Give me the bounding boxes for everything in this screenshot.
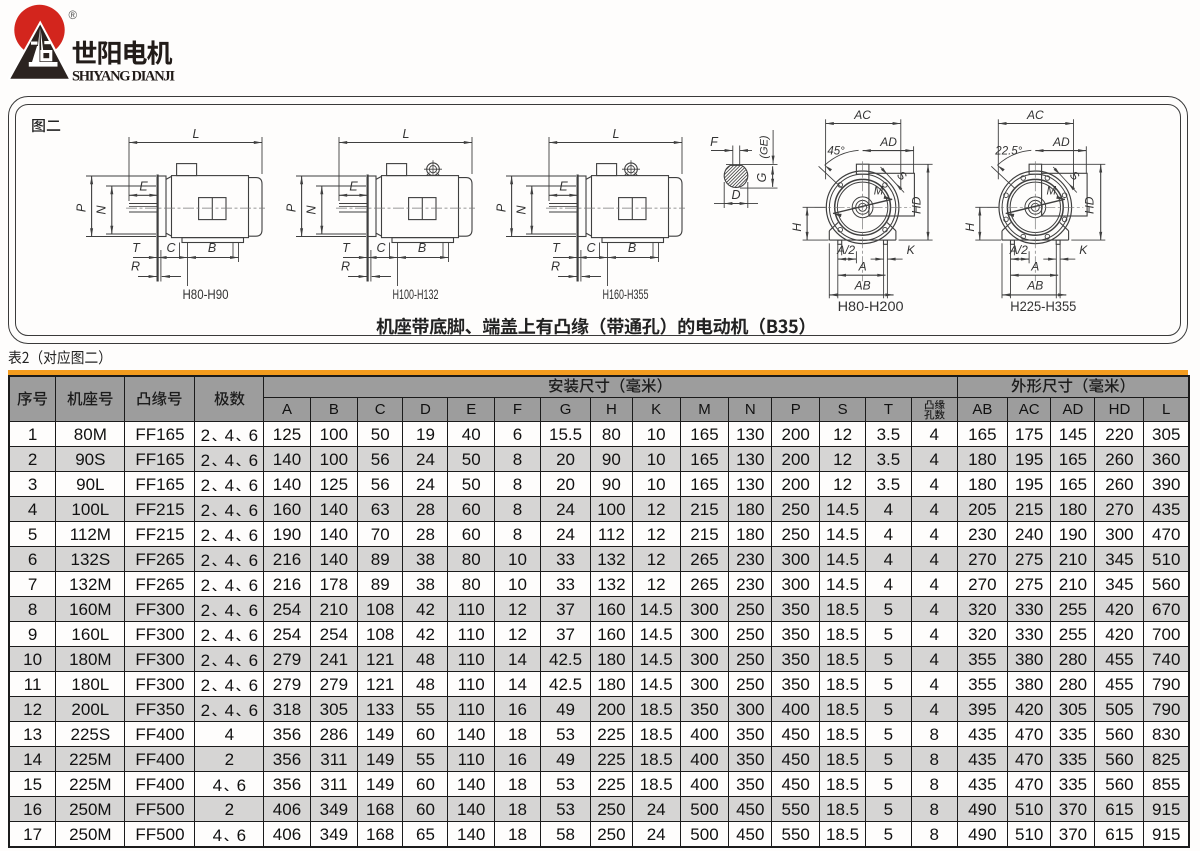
svg-text:SHIYANG DIANJI: SHIYANG DIANJI xyxy=(72,69,175,85)
svg-text:B: B xyxy=(418,241,426,255)
svg-text:P: P xyxy=(285,203,299,212)
svg-text:E: E xyxy=(139,180,148,194)
svg-text:N: N xyxy=(305,205,319,215)
svg-text:T: T xyxy=(552,241,561,255)
svg-text:(GE): (GE) xyxy=(759,135,771,159)
svg-text:N: N xyxy=(95,205,109,215)
svg-text:B: B xyxy=(628,241,636,255)
svg-text:A: A xyxy=(1030,259,1039,273)
svg-text:HD: HD xyxy=(910,196,924,214)
svg-text:S: S xyxy=(1067,169,1081,183)
svg-text:C: C xyxy=(376,241,386,255)
svg-text:H160-H355: H160-H355 xyxy=(603,287,649,302)
svg-text:G: G xyxy=(755,172,769,182)
svg-text:A: A xyxy=(858,259,867,273)
svg-text:K: K xyxy=(1079,243,1088,257)
svg-text:M: M xyxy=(874,185,884,197)
svg-text:AD: AD xyxy=(879,135,897,149)
svg-text:B: B xyxy=(208,241,216,255)
svg-text:K: K xyxy=(907,243,916,257)
svg-text:D: D xyxy=(731,188,740,202)
svg-text:22.5°: 22.5° xyxy=(994,145,1022,157)
svg-text:R: R xyxy=(131,260,140,274)
svg-text:AC: AC xyxy=(853,108,871,122)
svg-text:R: R xyxy=(341,260,350,274)
svg-text:R: R xyxy=(551,260,560,274)
svg-text:T: T xyxy=(342,241,351,255)
svg-text:AB: AB xyxy=(854,278,871,292)
svg-text:H: H xyxy=(790,223,804,232)
svg-text:M: M xyxy=(1047,185,1057,197)
svg-text:L: L xyxy=(613,127,620,141)
svg-text:AB: AB xyxy=(1026,278,1043,292)
svg-text:45°: 45° xyxy=(827,145,845,157)
svg-text:®: ® xyxy=(69,10,78,22)
svg-text:P: P xyxy=(75,203,89,212)
svg-text:A/2: A/2 xyxy=(1009,243,1028,257)
svg-text:A/2: A/2 xyxy=(836,243,855,257)
svg-text:AC: AC xyxy=(1026,108,1044,122)
svg-text:C: C xyxy=(586,241,596,255)
svg-text:H: H xyxy=(963,223,977,232)
svg-text:F: F xyxy=(710,135,719,149)
svg-text:H80-H200: H80-H200 xyxy=(838,299,904,314)
svg-text:S: S xyxy=(894,169,908,183)
svg-text:P: P xyxy=(495,203,509,212)
svg-text:C: C xyxy=(166,241,176,255)
svg-text:N: N xyxy=(515,205,529,215)
svg-text:L: L xyxy=(193,127,200,141)
svg-text:H225-H355: H225-H355 xyxy=(1010,299,1076,314)
svg-text:H80-H90: H80-H90 xyxy=(183,287,229,302)
svg-text:T: T xyxy=(132,241,141,255)
svg-text:AD: AD xyxy=(1052,135,1070,149)
svg-text:H100-H132: H100-H132 xyxy=(393,287,439,302)
svg-text:HD: HD xyxy=(1082,196,1096,214)
svg-text:E: E xyxy=(559,180,568,194)
svg-text:L: L xyxy=(403,127,410,141)
svg-text:E: E xyxy=(349,180,358,194)
